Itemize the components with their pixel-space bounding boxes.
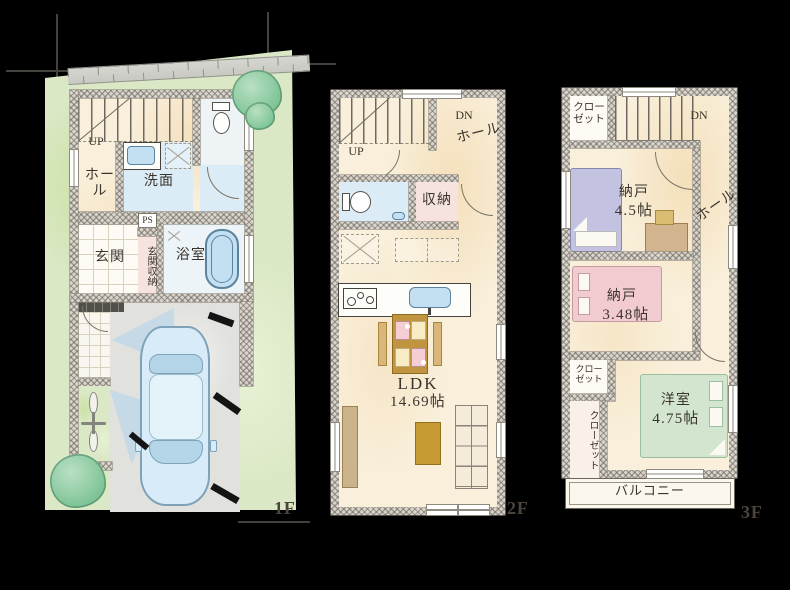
dashed-divider: [427, 239, 428, 261]
label-nando1: 納戸: [610, 185, 658, 201]
label-closet-mid: クロー ゼット: [570, 364, 608, 385]
wall: [193, 98, 200, 165]
burner: [366, 296, 374, 304]
staircase: [339, 98, 429, 144]
kitchen-counter: [338, 283, 471, 317]
stair-diagonal: [339, 98, 390, 145]
label-up: UP: [80, 135, 112, 149]
wall: [70, 294, 253, 302]
desk: [645, 223, 688, 253]
washer-space: [165, 143, 191, 169]
bed-fold: [573, 217, 587, 231]
window: [403, 90, 461, 98]
chair: [395, 321, 410, 340]
label-nando2-size: 3.48帖: [595, 307, 657, 324]
label-storage: 収納: [416, 193, 458, 209]
survey-line: [238, 521, 310, 523]
kitchen-sink: [409, 287, 451, 308]
wall: [600, 401, 607, 478]
floor-plan-2f: DN ホール UP 収納 LDK 14.69帖 2F: [328, 88, 520, 522]
label-dn: DN: [686, 109, 712, 123]
sideboard: [342, 406, 358, 488]
label-up: UP: [341, 145, 371, 159]
burner: [347, 297, 356, 306]
chair: [411, 321, 426, 340]
pillow: [578, 273, 590, 291]
bed-sheet: [575, 231, 617, 247]
side-garden: [78, 386, 110, 462]
wall: [429, 98, 436, 150]
label-bathroom: 浴室: [165, 248, 217, 264]
wall: [570, 352, 700, 360]
wall: [570, 394, 615, 401]
floor-tag-1f: 1F: [274, 498, 296, 519]
label-washroom: 洗面: [133, 174, 185, 190]
car-mirror: [210, 440, 217, 452]
window: [729, 386, 737, 432]
label-entrance: 玄関: [83, 250, 137, 266]
window: [562, 172, 570, 228]
bicycle-icon: [89, 392, 98, 414]
washbasin: [127, 146, 155, 165]
floor-tag-2f: 2F: [507, 498, 529, 519]
window: [331, 423, 339, 471]
label-dn: DN: [451, 109, 477, 123]
wall: [157, 224, 163, 294]
dashed-space: [341, 234, 379, 264]
hand-sink: [392, 212, 405, 220]
window: [245, 236, 253, 282]
bench: [433, 322, 442, 366]
car-windshield: [149, 440, 203, 464]
wall: [70, 90, 253, 98]
shelf-unit: [455, 405, 488, 489]
window: [497, 325, 505, 359]
window: [427, 505, 457, 515]
wall: [138, 228, 157, 236]
burner: [357, 292, 364, 299]
floor-tag-3f: 3F: [741, 502, 763, 523]
window: [70, 150, 78, 186]
bed-fold: [709, 439, 725, 455]
label-western-size: 4.75帖: [644, 411, 708, 428]
wall: [339, 175, 458, 182]
label-hall: ホール: [78, 168, 122, 200]
bench: [378, 322, 387, 366]
wall: [570, 252, 693, 260]
car-rear-window: [149, 354, 203, 374]
wall: [78, 378, 110, 386]
car: [140, 326, 210, 506]
chair: [411, 348, 426, 367]
label-closet-top: クロー ゼット: [570, 102, 608, 126]
cushion-dot: [421, 360, 426, 365]
label-nando1-size: 4.5帖: [606, 203, 662, 220]
wall: [70, 90, 78, 470]
toilet-fixture: [342, 193, 350, 211]
stove: [343, 288, 377, 309]
label-ldk-size: 14.69帖: [376, 394, 460, 411]
window: [459, 505, 489, 515]
label-closet-left: クローゼット: [572, 406, 598, 474]
window: [623, 88, 675, 96]
tree-icon: [50, 454, 106, 508]
wall: [78, 212, 245, 224]
chair: [395, 348, 410, 367]
wall: [570, 141, 700, 148]
tree-icon: [245, 102, 275, 130]
label-western: 洋室: [650, 393, 702, 409]
label-balcony: バルコニー: [565, 484, 735, 499]
wall: [240, 302, 253, 386]
shower-mark: [167, 229, 180, 242]
dining-set: [378, 314, 442, 374]
cushion-dot: [405, 324, 410, 329]
label-entrance-storage: 玄関収納: [139, 240, 156, 292]
car-roof: [149, 374, 203, 440]
pillow: [709, 407, 723, 427]
toilet-fixture: [213, 112, 230, 134]
floor-plan-1f: UP ホール 洗面 PS 玄関 玄関収納 浴室 1F: [40, 40, 298, 520]
wall: [608, 360, 615, 394]
window: [497, 423, 505, 457]
window: [729, 226, 737, 268]
balcony-door: [647, 470, 703, 478]
dashed-space: [395, 238, 459, 262]
wall: [339, 222, 458, 229]
label-nando2: 納戸: [598, 289, 646, 305]
low-table: [415, 422, 441, 465]
label-ps: PS: [138, 216, 157, 227]
floor-plan-sheet: UP ホール 洗面 PS 玄関 玄関収納 浴室 1F: [0, 0, 790, 590]
floor-plan-3f: クロー ゼット DN ホール 納戸 4.5帖 納戸 3.48帖 クロー ゼット …: [560, 86, 760, 526]
toilet-fixture: [212, 102, 230, 111]
wall: [693, 148, 700, 352]
label-ldk: LDK: [381, 374, 455, 394]
pillow: [709, 381, 723, 401]
pillow: [578, 297, 590, 315]
toilet-fixture: [350, 191, 371, 213]
bicycle-frame: [92, 412, 95, 434]
